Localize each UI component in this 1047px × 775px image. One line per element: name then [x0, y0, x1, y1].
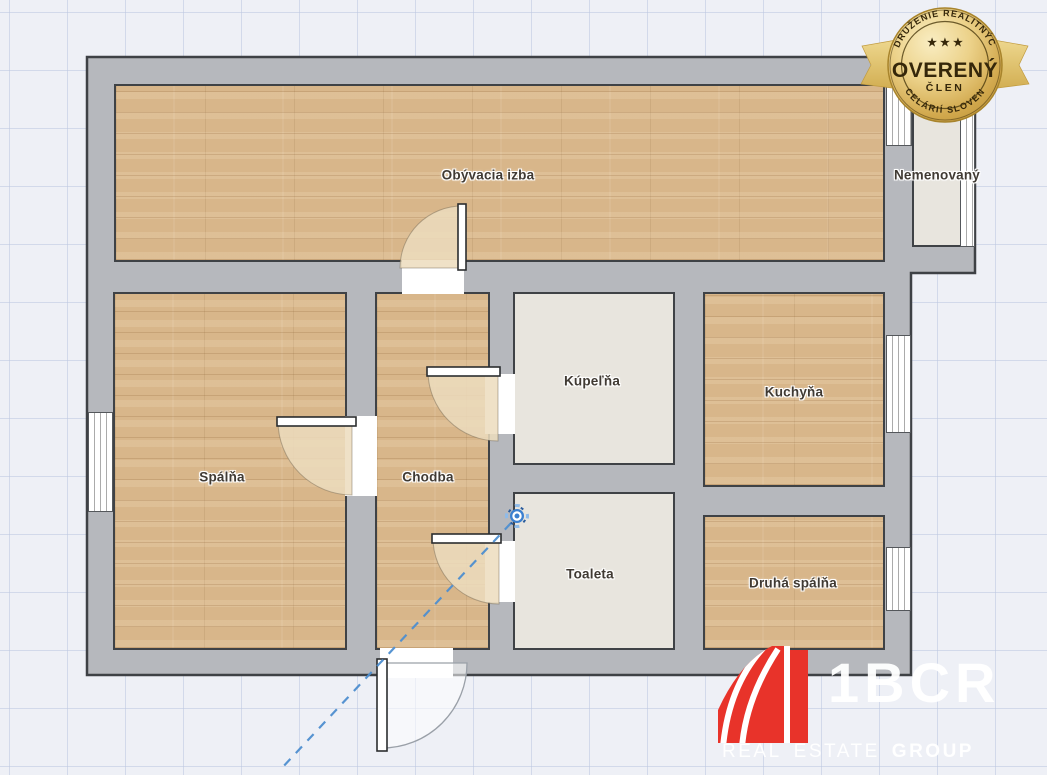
- opening-living-hallway: [402, 260, 464, 294]
- verified-badge: ZDRUŽENIE REALITNÝCH ★ ★ ★ OVERENÝ ČLEN …: [850, 0, 1040, 133]
- room-label-bedroom: Spálňa: [199, 470, 244, 485]
- logo-name: 1BCR: [828, 650, 1000, 715]
- badge-subtitle: ČLEN: [926, 81, 965, 94]
- panorama-360-icon[interactable]: [504, 503, 530, 529]
- opening-toilet: [485, 541, 515, 602]
- badge-stars: ★ ★ ★: [927, 37, 963, 49]
- logo-word-group: GROUP: [892, 741, 974, 763]
- window-kitchen-right: [886, 335, 911, 433]
- opening-bathroom: [485, 374, 515, 434]
- logo-word-real: REAL: [722, 741, 782, 763]
- opening-entrance: [380, 648, 453, 678]
- room-label-living-room: Obývacia izba: [442, 168, 535, 183]
- logo-tagline: REAL ESTATE GROUP: [722, 741, 974, 763]
- logo-mark-icon: [716, 643, 812, 745]
- room-label-hallway: Chodba: [402, 470, 453, 485]
- room-label-bathroom: Kúpeľňa: [564, 374, 620, 389]
- badge-title: OVERENÝ: [892, 58, 998, 82]
- room-label-second-bedroom: Druhá spálňa: [749, 576, 837, 591]
- window-bedroom-left: [88, 412, 113, 512]
- room-label-kitchen: Kuchyňa: [765, 385, 823, 400]
- floorplan-canvas: Obývacia izba Nemenovaný Spálňa Chodba K…: [0, 0, 1047, 775]
- room-label-toilet: Toaleta: [566, 567, 614, 582]
- window-second-bedroom-right: [886, 547, 911, 611]
- logo-word-estate: ESTATE: [794, 741, 880, 763]
- opening-bedroom: [345, 416, 377, 496]
- room-label-unnamed: Nemenovaný: [894, 168, 980, 183]
